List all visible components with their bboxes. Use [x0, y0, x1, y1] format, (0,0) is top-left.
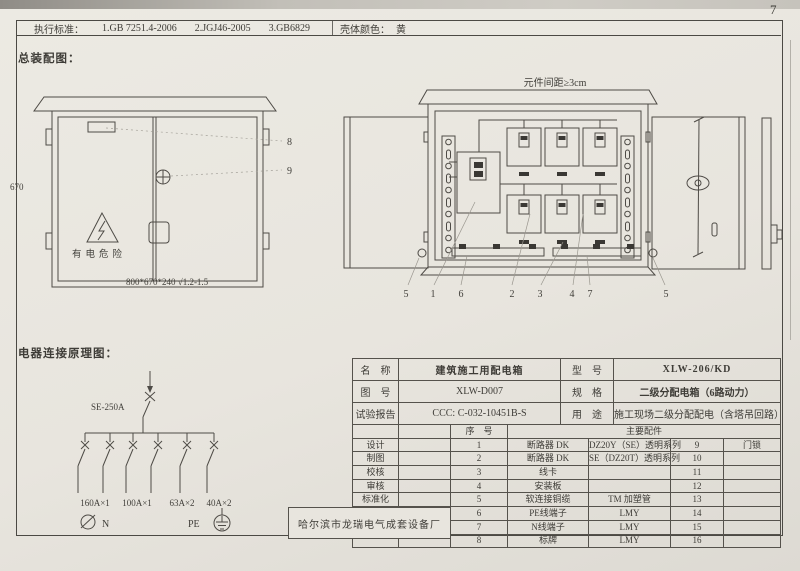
callout-3: 3 [538, 289, 543, 300]
main-switch-blade [143, 401, 150, 417]
part-name: 断路器 DK [508, 452, 589, 466]
sign-label-draft: 制图 [353, 452, 399, 466]
main-breaker [457, 152, 500, 213]
hinge-top-left [46, 129, 52, 145]
sign-label-standardize: 标准化 [353, 493, 399, 507]
standard-item-3: 3.GB6829 [269, 23, 310, 34]
callout-2: 2 [510, 289, 515, 300]
open-cabinet-roof [419, 90, 657, 104]
table-row: 校核 3 线卡 11 [353, 466, 781, 480]
door-side-view [762, 118, 771, 269]
cabinet-front-view-drawing: 670 有电危险 800*670*240 √1.2-1.5 8 9 [10, 85, 330, 310]
table-row: 名 称 建筑施工用配电箱 型 号 XLW-206/KD [353, 359, 781, 381]
n-terminal-bar [553, 248, 641, 256]
drawing-no-label: 图 号 [353, 381, 399, 403]
standard-item-1: 1.GB 7251.4-2006 [102, 23, 177, 34]
height-dimension: 670 [10, 182, 24, 192]
table-row: 图 号 XLW-D007 规 格 二级分配电箱（6路动力） [353, 381, 781, 403]
spec-label: 规 格 [561, 381, 614, 403]
neutral-label: N [102, 519, 109, 530]
part-no-2: 16 [671, 534, 724, 548]
table-row: 审核 4 安装板 12 [353, 479, 781, 493]
test-report-value: CCC: C-032-10451B-S [399, 403, 561, 425]
sign-label-review: 审核 [353, 479, 399, 493]
part-no: 1 [451, 438, 508, 452]
manufacturer-name: 哈尔滨市龙瑞电气成套设备厂 [298, 516, 441, 531]
callout-5-right: 5 [664, 289, 669, 300]
right-mounting-rail [621, 136, 634, 258]
feed-arrow [147, 386, 153, 393]
table-row: 试验报告 CCC: C-032-10451B-S 用 途 施工现场二级分配配电（… [353, 403, 781, 425]
page-number: 7 [770, 2, 777, 18]
part-no: 8 [451, 534, 508, 548]
name-label: 名 称 [353, 359, 399, 381]
rod-handle-knob [695, 180, 701, 186]
cabinet-front-outline [34, 97, 276, 287]
part-spec: LMY [589, 520, 671, 534]
part-name-2 [724, 520, 781, 534]
part-name: 软连接铜缆 [508, 493, 589, 507]
shell-color-label: 壳体颜色： [340, 21, 390, 36]
hinge-bottom-right [263, 233, 269, 249]
part-no: 7 [451, 520, 508, 534]
drawing-no-value: XLW-D007 [399, 381, 561, 403]
part-spec: DZ20Y（SE）透明系列 [589, 438, 671, 452]
branch-label-100a: 100A×1 [122, 498, 152, 508]
scan-top-edge [0, 0, 800, 9]
side-latch [771, 225, 777, 243]
door-locking-rod [698, 120, 699, 254]
part-name-2: 门锁 [724, 438, 781, 452]
part-no: 6 [451, 507, 508, 521]
part-spec [589, 479, 671, 493]
part-name-2 [724, 452, 781, 466]
accessories-header: 主要配件 [508, 425, 781, 439]
part-no-2: 13 [671, 493, 724, 507]
branch-label-40a: 40A×2 [206, 498, 231, 508]
part-name-2 [724, 466, 781, 480]
callout-6: 6 [459, 289, 464, 300]
part-name-2 [724, 479, 781, 493]
part-name-2 [724, 493, 781, 507]
sign-value-cell [399, 425, 451, 439]
assembly-section-title: 总装配图： [18, 50, 81, 66]
product-info-table: 名 称 建筑施工用配电箱 型 号 XLW-206/KD 图 号 XLW-D007… [352, 358, 781, 425]
spec-value: 二级分配电箱（6路动力） [614, 381, 781, 403]
part-name-2 [724, 534, 781, 548]
cabinet-open-view-drawing: 元件间距≥3cm 5 1 6 2 3 4 7 5 [335, 72, 795, 305]
callout-5-left: 5 [404, 289, 409, 300]
table-row: 设计 1 断路器 DK DZ20Y（SE）透明系列 9 门锁 [353, 438, 781, 452]
table-row: 标准化 5 软连接铜缆 TM 加塑管 13 [353, 493, 781, 507]
model-value: XLW-206/KD [614, 359, 781, 381]
callout-leader-lines [408, 202, 665, 285]
name-value: 建筑施工用配电箱 [399, 359, 561, 381]
part-spec: TM 加塑管 [589, 493, 671, 507]
scanned-drawing-page: 7 执行标准： 1.GB 7251.4-2006 2.JGJ46-2005 3.… [0, 0, 800, 571]
part-no: 5 [451, 493, 508, 507]
shell-color-value: 黄 [396, 21, 406, 36]
part-name: 断路器 DK [508, 438, 589, 452]
hinge-bottom-left [46, 233, 52, 249]
part-name: PE线端子 [508, 507, 589, 521]
side-latch-tab [777, 230, 782, 239]
part-spec: LMY [589, 507, 671, 521]
left-open-door [344, 117, 428, 268]
pe-label: PE [188, 519, 200, 530]
model-label: 型 号 [561, 359, 614, 381]
door-handle-box [149, 222, 169, 243]
cabinet-base [421, 267, 655, 275]
left-door-hook [418, 249, 426, 257]
standards-header: 执行标准： 1.GB 7251.4-2006 2.JGJ46-2005 3.GB… [34, 21, 310, 35]
part-spec: SE（DZ20T）透明系列 [589, 452, 671, 466]
dark-details [459, 136, 634, 249]
part-no-2: 15 [671, 520, 724, 534]
standard-item-2: 2.JGJ46-2005 [195, 23, 251, 34]
branch-label-63a: 63A×2 [169, 498, 194, 508]
part-no: 2 [451, 452, 508, 466]
part-name: 线卡 [508, 466, 589, 480]
callout-9: 9 [287, 166, 292, 177]
shell-color-header: 壳体颜色： 黄 [340, 21, 406, 35]
lightning-bolt-icon [98, 221, 105, 240]
serial-header: 序 号 [451, 425, 508, 439]
interior-panel [435, 111, 641, 260]
warning-text: 有电危险 [72, 248, 126, 260]
dimensions-note: 800*670*240 √1.2-1.5 [126, 277, 209, 287]
callout-1: 1 [431, 289, 436, 300]
main-breaker-label: SE-250A [91, 402, 125, 412]
standards-label: 执行标准： [34, 21, 84, 36]
branch-label-160a: 160A×1 [80, 498, 110, 508]
part-no-2: 12 [671, 479, 724, 493]
table-row: 制图 2 断路器 DK SE（DZ20T）透明系列 10 [353, 452, 781, 466]
sign-label-check: 校核 [353, 466, 399, 480]
manufacturer-box: 哈尔滨市龙瑞电气成套设备厂 [288, 507, 451, 539]
sign-header-cell [353, 425, 399, 439]
callout-7: 7 [588, 289, 593, 300]
leader-line-9 [171, 170, 282, 176]
hinge-mark-2 [424, 232, 428, 242]
door-slot [712, 223, 717, 236]
part-name: 标牌 [508, 534, 589, 548]
part-no-2: 14 [671, 507, 724, 521]
left-mounting-rail [442, 136, 455, 258]
hinge-top-right [263, 129, 269, 145]
cabinet-roof [34, 97, 276, 111]
part-no: 3 [451, 466, 508, 480]
callout-8: 8 [287, 137, 292, 148]
callout-4: 4 [570, 289, 575, 300]
part-no: 4 [451, 479, 508, 493]
part-spec: LMY [589, 534, 671, 548]
leader-line-8 [106, 128, 282, 141]
parts-header-row: 序 号 主要配件 [353, 425, 781, 439]
spacing-note: 元件间距≥3cm [524, 76, 587, 89]
nameplate [88, 122, 115, 132]
wiring-schematic-drawing: SE-250A 160A×1 100A×1 63A×2 40A×2 N PE [25, 355, 310, 535]
warning-triangle-icon [87, 213, 118, 242]
hinge-mark-1 [424, 132, 428, 142]
sign-label-design: 设计 [353, 438, 399, 452]
usage-value: 施工现场二级分配配电（含塔吊回路） [614, 403, 781, 425]
usage-label: 用 途 [561, 403, 614, 425]
pe-terminal-bar [452, 248, 544, 256]
part-no-2: 11 [671, 466, 724, 480]
part-name: 安装板 [508, 479, 589, 493]
test-report-label: 试验报告 [353, 403, 399, 425]
right-door-hook [649, 249, 657, 257]
part-name-2 [724, 507, 781, 521]
part-name: N线端子 [508, 520, 589, 534]
part-spec [589, 466, 671, 480]
header-cell-divider [332, 21, 333, 35]
